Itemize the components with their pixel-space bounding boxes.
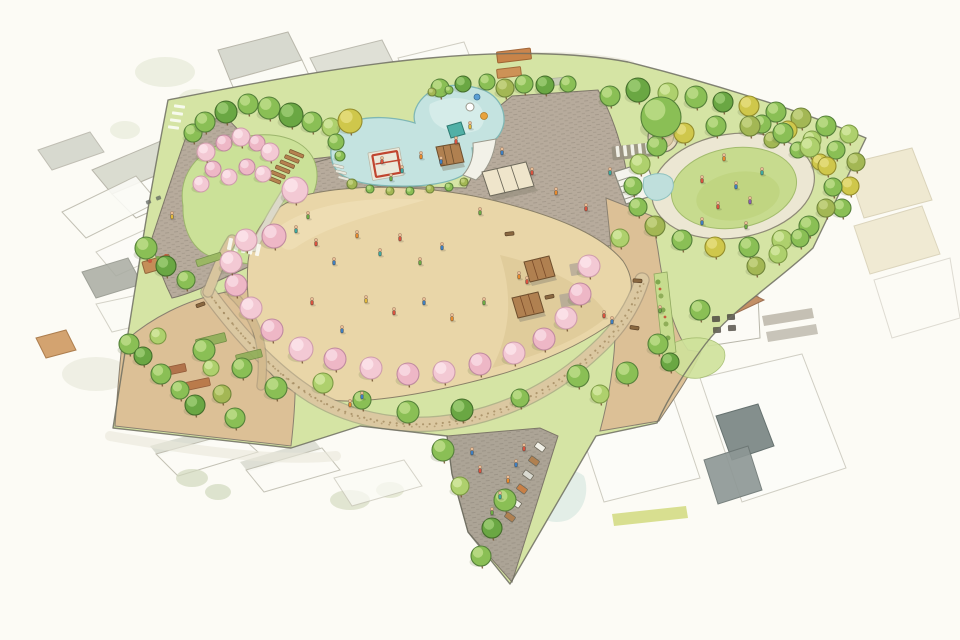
person-head: [364, 295, 367, 298]
person-body: [420, 154, 423, 159]
tree-highlight: [429, 89, 433, 93]
person-head: [450, 313, 453, 316]
tree-highlight: [291, 339, 303, 351]
pool-float: [481, 113, 488, 120]
tree-highlight: [195, 340, 206, 351]
person-head: [700, 175, 703, 178]
person-body: [749, 199, 752, 204]
person-head: [418, 257, 421, 260]
tree-highlight: [194, 177, 202, 185]
person-body: [379, 251, 382, 256]
person-body: [499, 494, 502, 499]
person-body: [393, 310, 396, 315]
person-head: [610, 316, 613, 319]
person-head: [525, 276, 528, 279]
person-head: [748, 196, 751, 199]
person-head: [498, 491, 501, 494]
tree-highlight: [227, 409, 237, 419]
person-body: [471, 450, 474, 455]
entry-bed-flower: [148, 259, 152, 263]
tree-highlight: [801, 217, 811, 227]
person-head: [514, 459, 517, 462]
person-body: [315, 241, 318, 246]
person-head: [744, 221, 747, 224]
person-head: [722, 153, 725, 156]
watercolor-park-plan: [0, 0, 960, 640]
tree-highlight: [535, 329, 546, 340]
tree-highlight: [329, 135, 337, 143]
person-body: [611, 319, 614, 324]
tree-highlight: [593, 386, 602, 395]
tree-highlight: [434, 440, 445, 451]
tree-highlight: [222, 252, 233, 263]
person-head: [470, 447, 473, 450]
person-body: [585, 206, 588, 211]
tree-highlight: [315, 374, 325, 384]
person-head: [478, 465, 481, 468]
person-head: [478, 207, 481, 210]
tree-highlight: [227, 275, 238, 286]
person-head: [584, 203, 587, 206]
tree-highlight: [819, 200, 828, 209]
person-body: [609, 170, 612, 175]
tree-highlight: [264, 226, 276, 238]
tree-highlight: [217, 136, 225, 144]
person-body: [603, 313, 606, 318]
tree-highlight: [151, 329, 159, 337]
tree-highlight: [217, 102, 228, 113]
tree-highlight: [304, 113, 314, 123]
person-body: [381, 159, 384, 164]
tree-highlight: [802, 138, 812, 148]
person-body: [451, 316, 454, 321]
person-head: [490, 507, 493, 510]
bench: [630, 325, 639, 330]
tree-highlight: [435, 362, 446, 373]
tree-highlight: [206, 162, 214, 170]
tree-highlight: [407, 188, 411, 192]
person-head: [522, 443, 525, 446]
person-head: [170, 211, 173, 214]
person-body: [659, 308, 662, 313]
tree-highlight: [571, 284, 582, 295]
tree-highlight: [826, 179, 835, 188]
person-body: [361, 394, 364, 399]
person-body: [440, 159, 443, 164]
tree-highlight: [660, 84, 670, 94]
tree-highlight: [399, 364, 410, 375]
tree-highlight: [473, 547, 483, 557]
person-head: [332, 257, 335, 260]
tree-highlight: [234, 359, 244, 369]
person-body: [518, 274, 521, 279]
person-body: [501, 150, 504, 155]
tree-highlight: [793, 230, 802, 239]
person-head: [400, 165, 403, 168]
person-head: [602, 310, 605, 313]
person-head: [482, 297, 485, 300]
tree-highlight: [687, 87, 698, 98]
tree-highlight: [471, 354, 482, 365]
tree-highlight: [237, 230, 248, 241]
tree-highlight: [284, 179, 298, 193]
person-body: [423, 300, 426, 305]
tree-highlight: [173, 382, 182, 391]
person-head: [554, 187, 557, 190]
tree-highlight: [517, 76, 526, 85]
person-head: [517, 271, 520, 274]
tree-highlight: [618, 363, 629, 374]
house-window: [728, 325, 736, 331]
tree-highlight: [647, 217, 657, 227]
person-body: [349, 402, 352, 407]
tree-highlight: [843, 178, 852, 187]
tree-highlight: [842, 126, 851, 135]
bench: [505, 232, 514, 236]
tree-highlight: [267, 378, 278, 389]
tree-highlight: [569, 366, 580, 377]
person-body: [356, 233, 359, 238]
tree-highlight: [336, 152, 341, 157]
person-body: [341, 328, 344, 333]
person-head: [360, 391, 363, 394]
person-body: [441, 245, 444, 250]
tree-highlight: [692, 301, 702, 311]
tree-highlight: [741, 97, 751, 107]
person-head: [378, 248, 381, 251]
tree-highlight: [326, 349, 337, 360]
person-body: [307, 214, 310, 219]
tree-highlight: [791, 143, 799, 151]
tree-highlight: [774, 231, 784, 241]
pool-float: [474, 94, 480, 100]
person-head: [355, 230, 358, 233]
tree-highlight: [561, 77, 569, 85]
person-body: [701, 178, 704, 183]
tree-highlight: [121, 335, 131, 345]
tree-highlight: [674, 231, 684, 241]
tree-highlight: [215, 386, 224, 395]
person-head: [340, 325, 343, 328]
bench: [633, 279, 642, 283]
person-body: [526, 279, 529, 284]
person-body: [311, 300, 314, 305]
person-body: [333, 260, 336, 265]
person-body: [401, 168, 404, 173]
person-head: [658, 305, 661, 308]
tree-highlight: [362, 358, 373, 369]
tree-highlight: [513, 390, 522, 399]
person-head: [422, 297, 425, 300]
person-head: [380, 156, 383, 159]
tree-highlight: [749, 258, 758, 267]
tree-highlight: [742, 117, 752, 127]
tree-highlight: [456, 77, 464, 85]
tree-highlight: [820, 158, 829, 167]
person-body: [295, 228, 298, 233]
tree-highlight: [348, 180, 353, 185]
tree-highlight: [204, 361, 212, 369]
tree-highlight: [829, 142, 838, 151]
tree-highlight: [480, 75, 488, 83]
person-head: [468, 121, 471, 124]
person-head: [389, 173, 392, 176]
tree-highlight: [242, 298, 253, 309]
person-head: [500, 147, 503, 150]
tree-highlight: [263, 320, 274, 331]
person-head: [398, 233, 401, 236]
tree-highlight: [708, 117, 718, 127]
person-body: [491, 510, 494, 515]
person-head: [310, 297, 313, 300]
tree-highlight: [461, 179, 465, 183]
person-head: [506, 475, 509, 478]
nw-hedge: [135, 57, 195, 87]
tree-highlight: [768, 103, 778, 113]
tree-highlight: [557, 308, 568, 319]
median-flower: [659, 288, 662, 291]
median-shrub: [664, 322, 669, 327]
tree-highlight: [741, 238, 751, 248]
person-body: [717, 204, 720, 209]
tree-highlight: [626, 178, 635, 187]
person-head: [530, 167, 533, 170]
tree-highlight: [650, 335, 660, 345]
person-body: [723, 156, 726, 161]
tree-highlight: [835, 200, 844, 209]
median-shrub: [659, 294, 664, 299]
tree-highlight: [137, 238, 148, 249]
tree-highlight: [632, 155, 642, 165]
person-body: [479, 210, 482, 215]
person-body: [745, 224, 748, 229]
tree-highlight: [324, 119, 333, 128]
tree-highlight: [505, 343, 516, 354]
person-body: [735, 184, 738, 189]
person-head: [454, 136, 457, 139]
tree-highlight: [222, 170, 230, 178]
tree-highlight: [818, 117, 828, 127]
tree-highlight: [645, 100, 666, 121]
tree-highlight: [538, 77, 547, 86]
tree-highlight: [199, 144, 208, 153]
person-body: [531, 170, 534, 175]
house-window: [712, 316, 720, 322]
person-head: [700, 217, 703, 220]
bush: [176, 469, 208, 487]
bush: [205, 484, 231, 500]
person-body: [455, 139, 458, 144]
median-shrub: [656, 280, 661, 285]
tree-highlight: [367, 186, 371, 190]
median-flower: [664, 316, 667, 319]
tree-highlight: [602, 87, 612, 97]
person-body: [399, 236, 402, 241]
person-head: [348, 399, 351, 402]
tree-highlight: [628, 80, 640, 92]
person-head: [734, 181, 737, 184]
tree-highlight: [484, 519, 494, 529]
person-body: [419, 260, 422, 265]
person-head: [716, 201, 719, 204]
person-body: [555, 190, 558, 195]
tree-highlight: [240, 160, 248, 168]
person-head: [314, 238, 317, 241]
person-body: [761, 170, 764, 175]
tree-highlight: [453, 478, 462, 487]
person-head: [419, 151, 422, 154]
tree-highlight: [340, 111, 352, 123]
person-head: [760, 167, 763, 170]
person-body: [515, 462, 518, 467]
person-head: [608, 167, 611, 170]
tree-highlight: [234, 129, 243, 138]
tree-highlight: [399, 402, 410, 413]
tree-highlight: [663, 354, 672, 363]
person-head: [439, 156, 442, 159]
person-body: [483, 300, 486, 305]
park-illustration-canvas: [0, 0, 960, 640]
tree-highlight: [197, 113, 207, 123]
tree-highlight: [446, 87, 450, 91]
tree-highlight: [250, 136, 258, 144]
tree-highlight: [263, 144, 272, 153]
person-body: [469, 124, 472, 129]
tree-highlight: [707, 238, 717, 248]
person-head: [306, 211, 309, 214]
tree-highlight: [187, 396, 197, 406]
tree-highlight: [186, 125, 195, 134]
person-head: [440, 242, 443, 245]
tree-highlight: [179, 272, 188, 281]
tree-highlight: [387, 188, 391, 192]
tree-highlight: [256, 167, 264, 175]
person-head: [294, 225, 297, 228]
tree-highlight: [715, 93, 725, 103]
tree-highlight: [281, 105, 293, 117]
nw-hedge: [110, 121, 140, 139]
tree-highlight: [153, 365, 163, 375]
tree-highlight: [136, 348, 145, 357]
tree-highlight: [631, 199, 640, 208]
tree-highlight: [427, 186, 431, 190]
tree-highlight: [260, 98, 271, 109]
tree-highlight: [158, 257, 168, 267]
person-body: [523, 446, 526, 451]
tree-highlight: [793, 109, 803, 119]
tree-highlight: [613, 230, 622, 239]
tree-highlight: [771, 246, 780, 255]
person-body: [701, 220, 704, 225]
tree-highlight: [775, 124, 785, 134]
tree-highlight: [580, 256, 591, 267]
person-head: [392, 307, 395, 310]
person-body: [365, 298, 368, 303]
tree-highlight: [453, 400, 464, 411]
pool-float: [466, 103, 474, 111]
person-body: [171, 214, 174, 219]
person-body: [479, 468, 482, 473]
person-body: [390, 176, 393, 181]
person-body: [507, 478, 510, 483]
tree-highlight: [849, 154, 858, 163]
tree-highlight: [498, 80, 507, 89]
tree-highlight: [446, 184, 450, 188]
tree-highlight: [240, 95, 250, 105]
